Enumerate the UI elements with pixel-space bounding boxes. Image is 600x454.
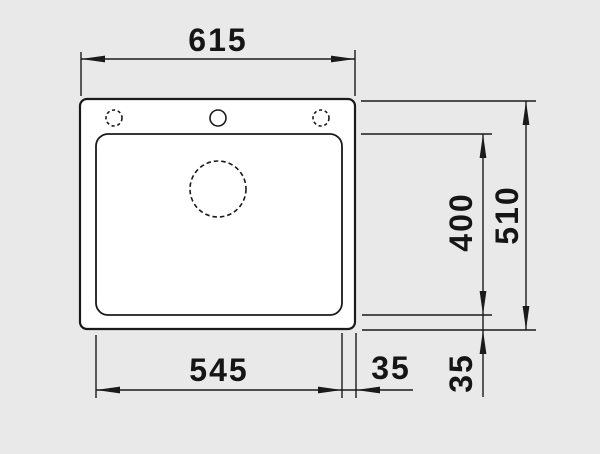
dim-rim-bottom-label: 35 [443, 353, 479, 393]
sink-dimension-drawing: 615 510 400 545 35 35 [0, 0, 600, 454]
dim-overall-width-label: 615 [188, 22, 247, 58]
dim-bowl-height-label: 400 [443, 192, 479, 251]
dim-overall-height-label: 510 [489, 185, 525, 244]
dim-bowl-width-label: 545 [189, 352, 248, 388]
dim-rim-right-label: 35 [371, 350, 411, 386]
sink-plan-view [80, 99, 355, 329]
